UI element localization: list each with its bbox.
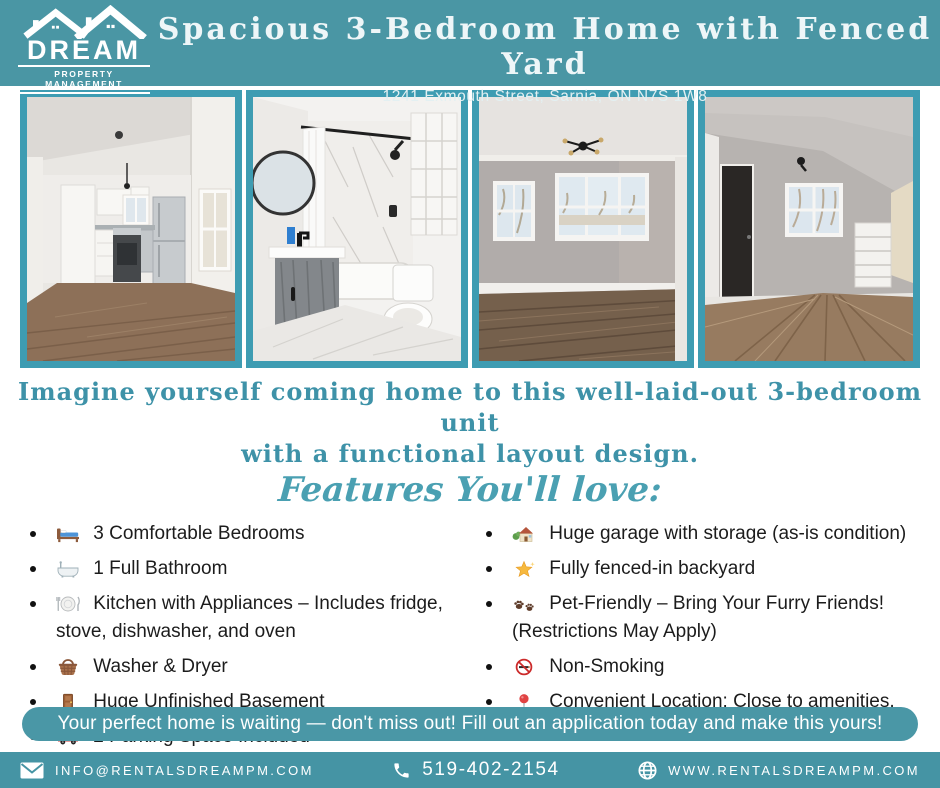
bullet-dot — [486, 664, 492, 670]
brand-tagline: PROPERTY MANAGEMENT — [16, 69, 152, 91]
photo-kitchen — [20, 90, 242, 368]
basket-icon — [56, 658, 80, 676]
website-contact[interactable]: WWW.RENTALSDREAMPM.COM — [638, 761, 920, 780]
feature-item: 1 Full Bathroom — [18, 555, 474, 583]
feature-text: Pet-Friendly – Bring Your Furry Friends!… — [512, 593, 884, 642]
bathtub-icon — [56, 560, 80, 578]
cta-banner: Your perfect home is waiting — don't mis… — [22, 707, 918, 741]
intro-line-2: with a functional layout design. — [0, 438, 940, 469]
paw-icon — [512, 595, 536, 613]
listing-title: Spacious 3-Bedroom Home with Fenced Yard — [150, 0, 940, 82]
bullet-dot — [30, 601, 36, 607]
bullet-dot — [486, 566, 492, 572]
feature-item: Non-Smoking — [474, 653, 930, 681]
star-icon — [512, 560, 536, 578]
feature-item: Huge garage with storage (as-is conditio… — [474, 520, 930, 548]
feature-text: 1 Full Bathroom — [93, 558, 227, 579]
globe-icon — [638, 761, 657, 780]
feature-text: 3 Comfortable Bedrooms — [93, 523, 304, 544]
phone-contact[interactable]: 519-402-2154 — [392, 759, 560, 781]
envelope-icon — [20, 762, 44, 779]
bullet-dot — [486, 699, 492, 705]
footer-contact-bar: INFO@RENTALSDREAMPM.COM 519-402-2154 W — [0, 752, 940, 788]
photo-strip — [0, 86, 940, 368]
bullet-dot — [30, 531, 36, 537]
cutlery-icon — [56, 595, 80, 613]
photo-bathroom — [246, 90, 468, 368]
bullet-dot — [486, 601, 492, 607]
phone-text: 519-402-2154 — [422, 759, 560, 781]
brand-name: DREAM — [16, 37, 152, 63]
bullet-dot — [30, 566, 36, 572]
feature-item: Pet-Friendly – Bring Your Furry Friends!… — [474, 590, 930, 646]
house-icon — [512, 525, 536, 543]
header: DREAM PROPERTY MANAGEMENT Spacious 3-Bed… — [0, 0, 940, 86]
rental-flyer: DREAM PROPERTY MANAGEMENT Spacious 3-Bed… — [0, 0, 940, 788]
feature-item: Washer & Dryer — [18, 653, 474, 681]
features-heading: Features You'll love: — [0, 470, 940, 510]
phone-icon — [392, 761, 411, 780]
logo-divider — [18, 65, 150, 67]
email-contact[interactable]: INFO@RENTALSDREAMPM.COM — [20, 762, 314, 779]
feature-text: Washer & Dryer — [93, 656, 227, 677]
brand-logo: DREAM PROPERTY MANAGEMENT — [16, 5, 152, 94]
roofs-icon — [20, 5, 148, 39]
feature-text: Kitchen with Appliances – Includes fridg… — [56, 593, 443, 642]
intro-text: Imagine yourself coming home to this wel… — [0, 376, 940, 469]
feature-item: Kitchen with Appliances – Includes fridg… — [18, 590, 474, 646]
feature-text: Huge garage with storage (as-is conditio… — [549, 523, 906, 544]
logo-divider-bottom — [18, 92, 150, 94]
email-text: INFO@RENTALSDREAMPM.COM — [55, 763, 314, 778]
feature-item: Fully fenced-in backyard — [474, 555, 930, 583]
feature-text: Fully fenced-in backyard — [549, 558, 755, 579]
bullet-dot — [30, 664, 36, 670]
feature-item: 3 Comfortable Bedrooms — [18, 520, 474, 548]
bed-icon — [56, 525, 80, 543]
intro-line-1: Imagine yourself coming home to this wel… — [0, 376, 940, 438]
website-text: WWW.RENTALSDREAMPM.COM — [668, 763, 920, 778]
listing-address: 1241 Exmouth Street, Sarnia, ON N7S 1W8 — [150, 88, 940, 106]
photo-bedroom — [698, 90, 920, 368]
feature-text: Non-Smoking — [549, 656, 664, 677]
photo-living-room — [472, 90, 694, 368]
no-smoking-icon — [512, 658, 536, 676]
bullet-dot — [486, 531, 492, 537]
bullet-dot — [30, 699, 36, 705]
